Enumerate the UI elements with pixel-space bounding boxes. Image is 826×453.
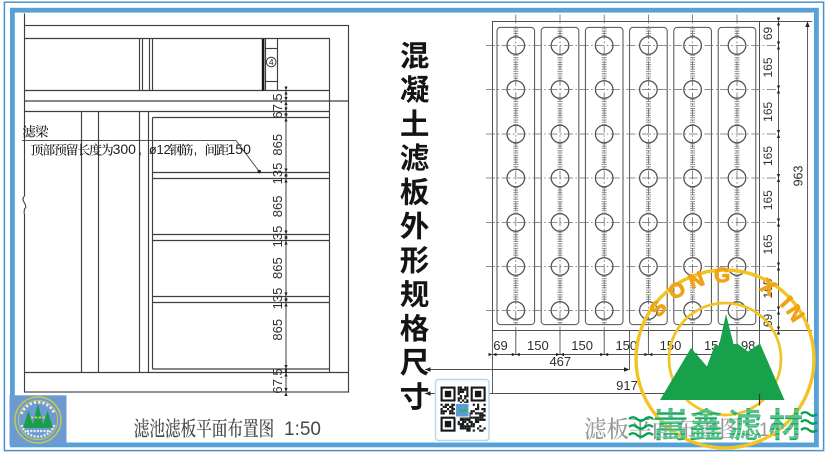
svg-text:865: 865	[270, 196, 285, 218]
svg-text:69: 69	[493, 338, 507, 353]
svg-text:917: 917	[616, 378, 638, 393]
svg-text:165: 165	[761, 146, 775, 166]
svg-text:135: 135	[270, 288, 285, 310]
svg-text:ø12: ø12	[149, 143, 171, 157]
svg-text:,: ,	[138, 141, 142, 157]
svg-text:300: 300	[113, 141, 137, 157]
svg-text:165: 165	[761, 234, 775, 254]
svg-text:865: 865	[270, 319, 285, 341]
svg-text:150: 150	[615, 338, 637, 353]
svg-text:963: 963	[792, 166, 806, 187]
svg-text:150: 150	[527, 338, 549, 353]
svg-text:G: G	[714, 264, 731, 288]
svg-text:135: 135	[270, 226, 285, 248]
svg-text:69: 69	[761, 27, 775, 41]
svg-text:165: 165	[761, 57, 775, 77]
svg-text:165: 165	[761, 101, 775, 121]
svg-text:165: 165	[761, 190, 775, 210]
svg-text:135: 135	[270, 163, 285, 185]
svg-text:67.5: 67.5	[270, 368, 285, 393]
svg-text:67.5: 67.5	[270, 93, 285, 118]
svg-text:865: 865	[270, 134, 285, 156]
svg-text:865: 865	[270, 257, 285, 279]
svg-text:1:50: 1:50	[284, 419, 321, 440]
svg-text:4: 4	[269, 57, 274, 67]
svg-text:,: ,	[194, 141, 198, 157]
svg-text:467: 467	[549, 354, 571, 369]
svg-text:150: 150	[228, 141, 252, 157]
svg-text:150: 150	[571, 338, 593, 353]
